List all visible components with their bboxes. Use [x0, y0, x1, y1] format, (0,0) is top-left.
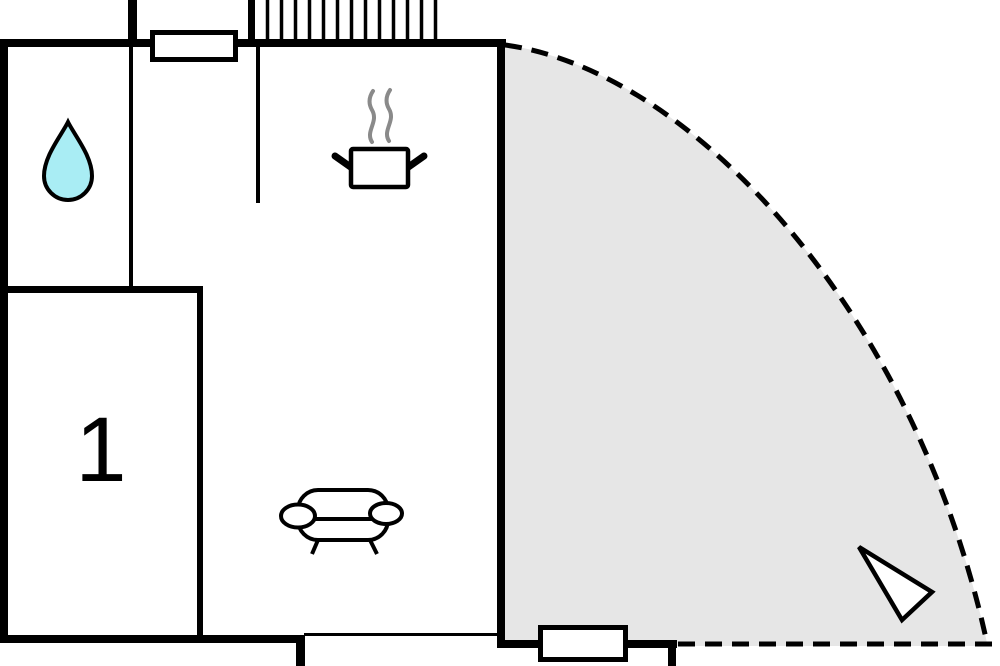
outer-wall-top [0, 39, 506, 47]
sofa-armrest-right [370, 503, 402, 524]
sofa-armrest-left [281, 505, 315, 528]
outer-wall-bottom-left [0, 635, 304, 643]
window-top [153, 33, 236, 60]
outer-wall-left [0, 39, 8, 643]
wall-stub-bottom-right [668, 640, 676, 666]
interior-wall-bedroom-right [197, 293, 203, 635]
wall-stub-top [128, 0, 137, 41]
outer-wall-right [497, 39, 505, 648]
pot-body [351, 149, 408, 187]
interior-wall-kitchen-left [256, 47, 260, 203]
stairs-hatch-first-line [248, 0, 255, 41]
interior-wall-bedroom-top [8, 286, 203, 293]
opening-threshold-line [304, 633, 497, 636]
window-bottom [541, 628, 626, 660]
room-number-label: 1 [75, 399, 126, 501]
floor-plan: 1 [0, 0, 1000, 666]
interior-wall-bathroom-right [129, 47, 133, 287]
wall-stub-bottom [296, 635, 305, 666]
